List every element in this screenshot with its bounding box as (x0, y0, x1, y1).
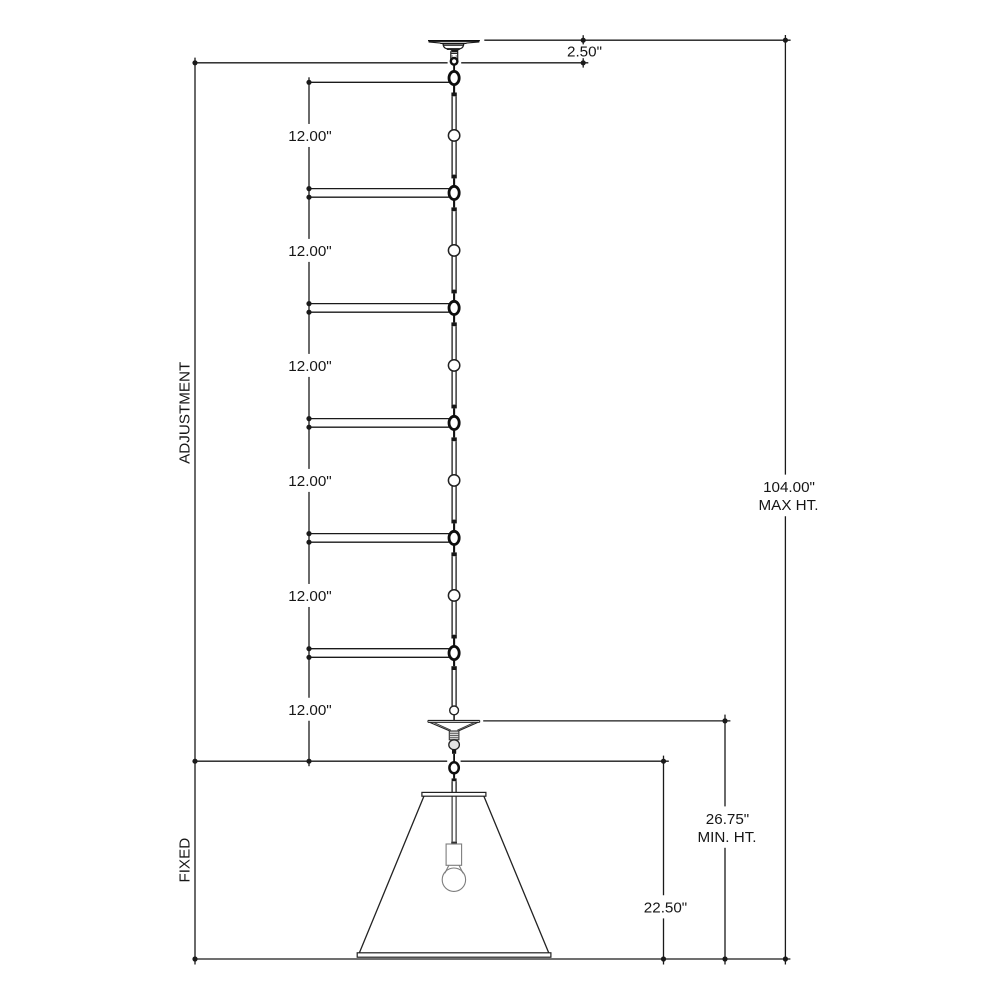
svg-text:12.00": 12.00" (288, 243, 331, 260)
svg-text:22.50": 22.50" (644, 899, 687, 916)
svg-text:12.00": 12.00" (288, 128, 331, 145)
svg-text:2.50": 2.50" (567, 44, 602, 61)
svg-text:MIN. HT.: MIN. HT. (697, 829, 756, 846)
svg-text:ADJUSTMENT: ADJUSTMENT (176, 362, 193, 464)
svg-text:104.00": 104.00" (763, 479, 815, 496)
svg-text:FIXED: FIXED (177, 838, 194, 883)
svg-text:26.75": 26.75" (706, 811, 749, 828)
svg-text:12.00": 12.00" (288, 473, 331, 490)
svg-text:12.00": 12.00" (288, 358, 331, 375)
svg-text:MAX HT.: MAX HT. (759, 497, 819, 514)
svg-text:12.00": 12.00" (288, 702, 331, 719)
svg-text:12.00": 12.00" (288, 588, 331, 605)
